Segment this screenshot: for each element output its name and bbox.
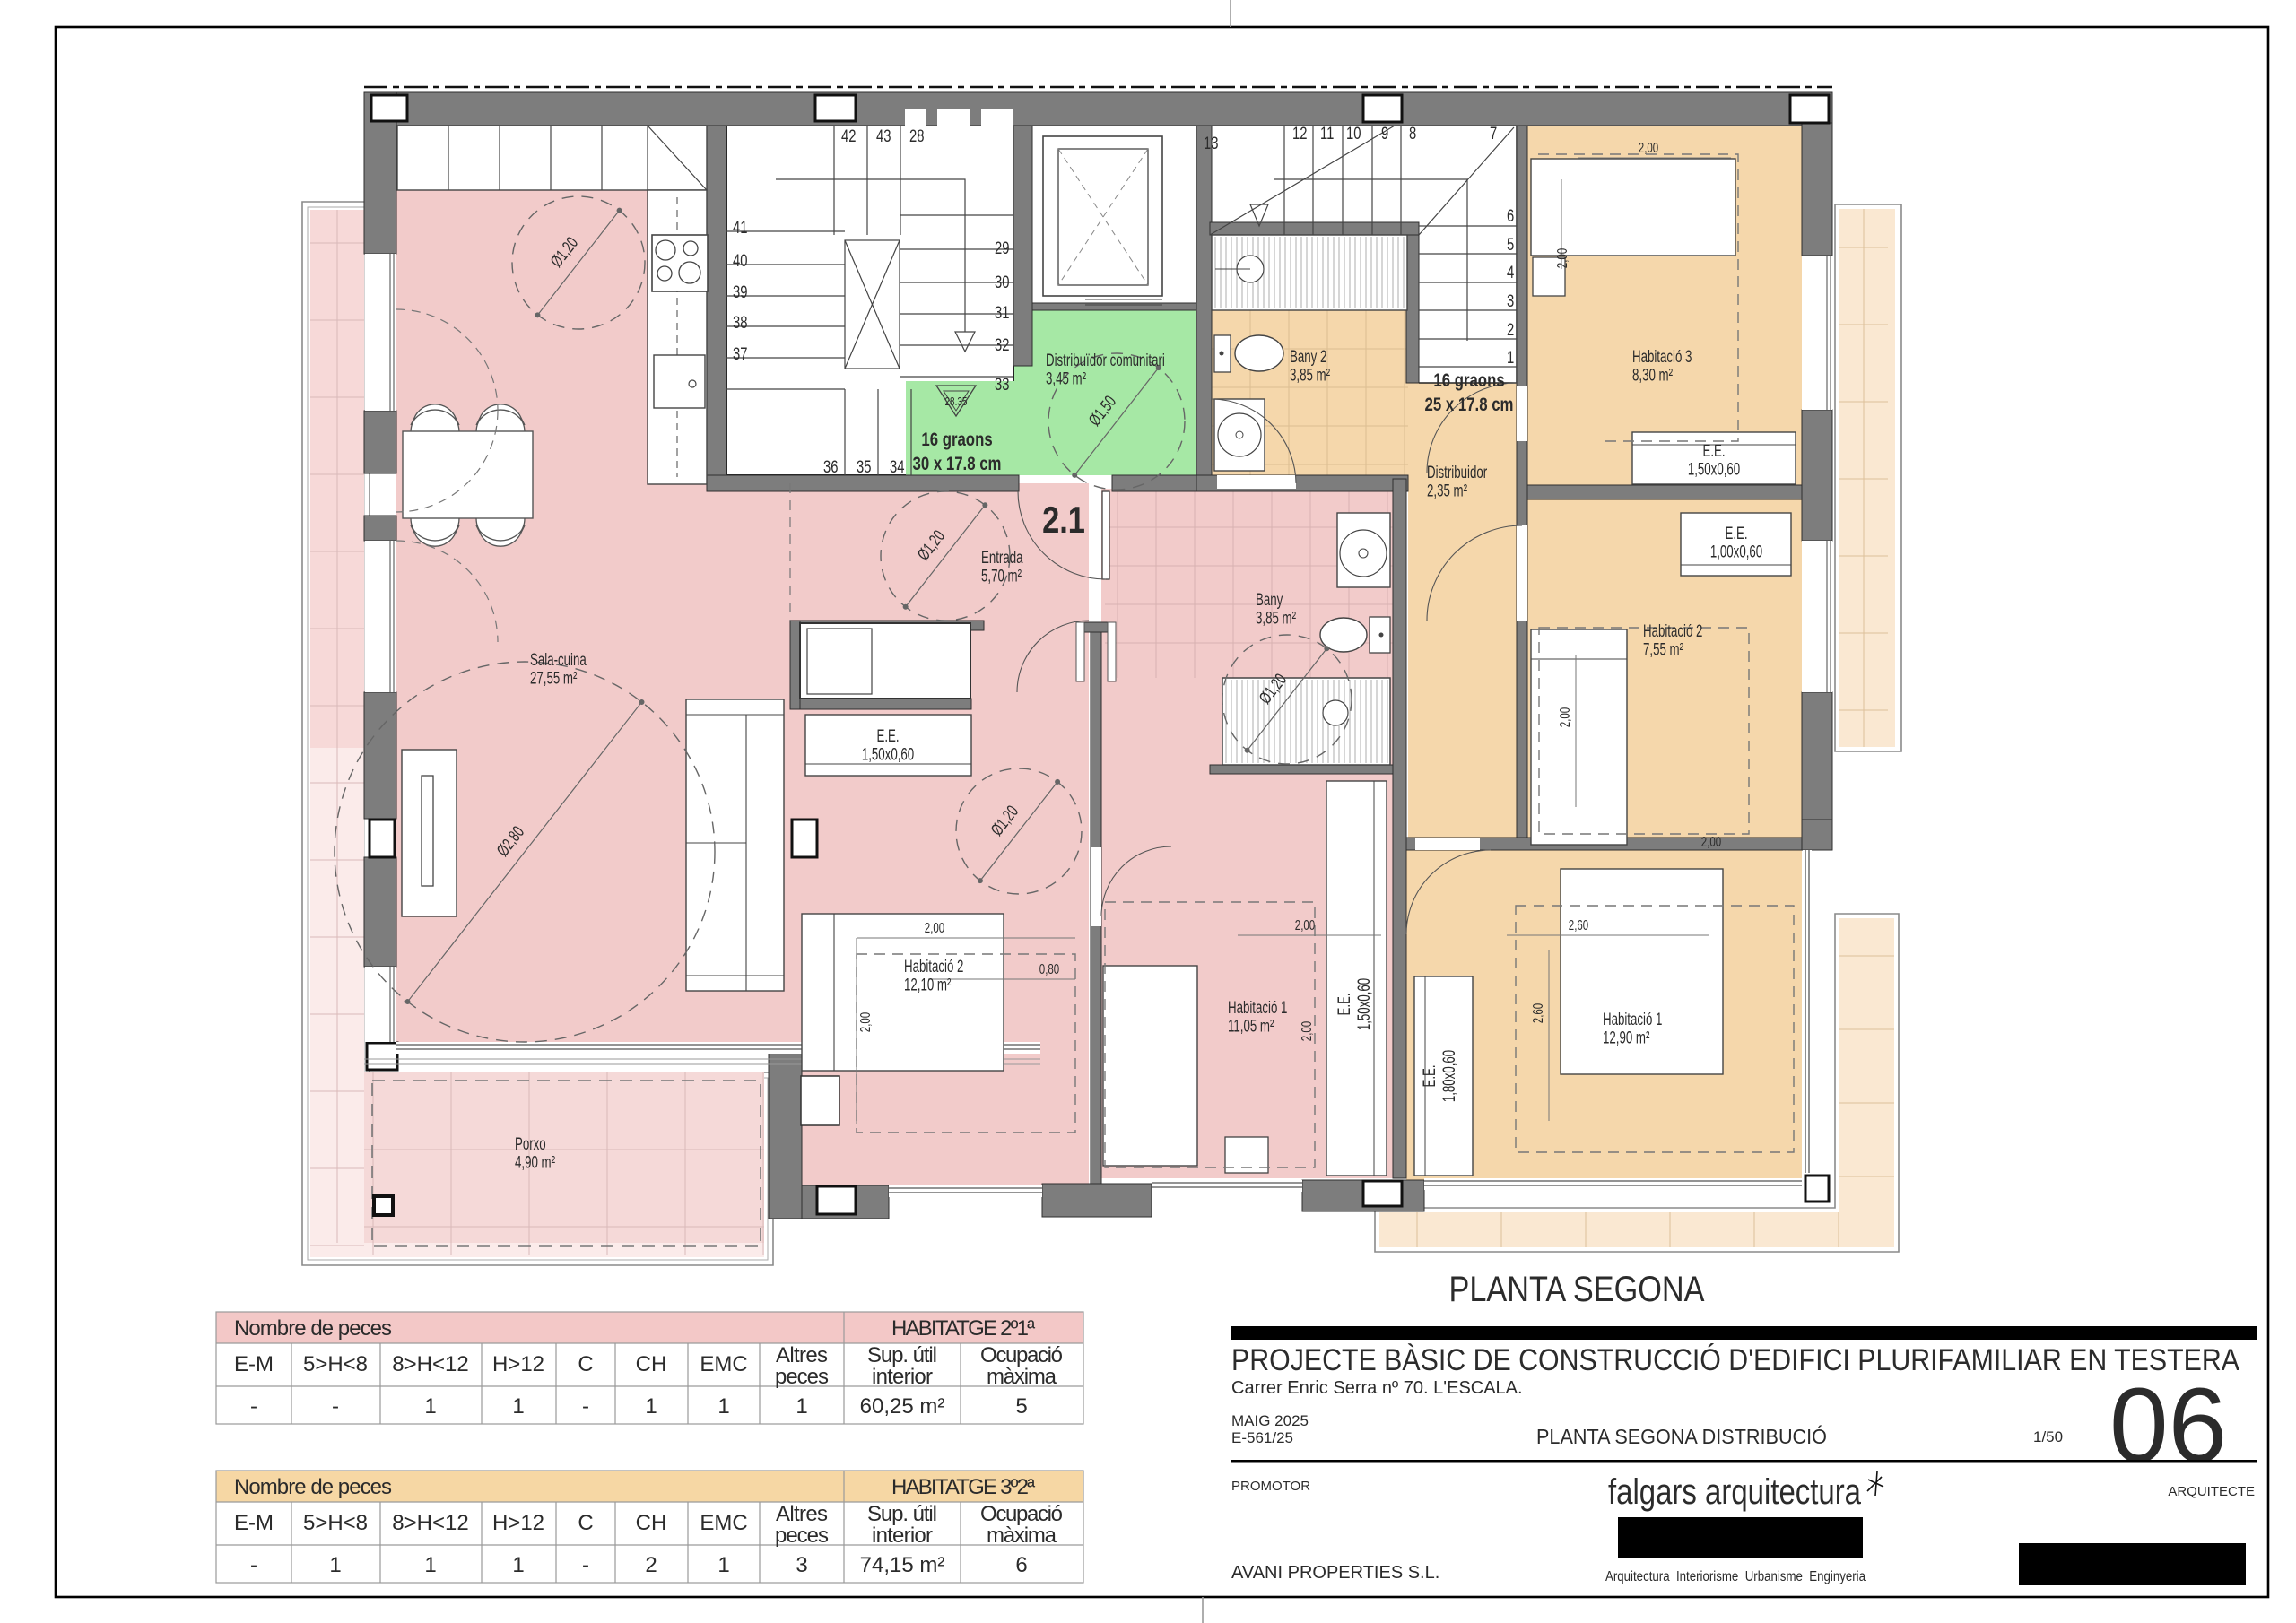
svg-text:E.E.: E.E. (1421, 1064, 1439, 1087)
svg-text:6: 6 (1507, 206, 1514, 225)
svg-text:10: 10 (1346, 124, 1361, 143)
svg-text:Sup. útil: Sup. útil (867, 1502, 937, 1526)
svg-text:2,35 m²: 2,35 m² (1427, 482, 1467, 500)
svg-text:16 graons: 16 graons (1433, 370, 1504, 391)
svg-text:Ocupació: Ocupació (980, 1502, 1063, 1526)
svg-text:Bany 2: Bany 2 (1290, 348, 1326, 367)
svg-text:PROMOTOR: PROMOTOR (1231, 1479, 1310, 1494)
svg-text:30: 30 (995, 273, 1009, 291)
svg-text:2: 2 (645, 1553, 657, 1577)
svg-text:1,50x0,60: 1,50x0,60 (1355, 978, 1374, 1030)
svg-text:màxima: màxima (987, 1523, 1057, 1548)
svg-text:6: 6 (1015, 1553, 1027, 1577)
svg-text:1/50: 1/50 (2033, 1428, 2063, 1445)
svg-text:peces: peces (775, 1365, 829, 1389)
svg-text:ARQUITECTE: ARQUITECTE (2168, 1484, 2255, 1499)
svg-text:29: 29 (995, 239, 1009, 257)
svg-text:37: 37 (733, 344, 747, 363)
svg-text:E-M: E-M (234, 1352, 274, 1376)
svg-text:Entrada: Entrada (981, 549, 1023, 568)
svg-text:8: 8 (1409, 124, 1416, 143)
svg-text:43: 43 (876, 126, 891, 145)
svg-text:0,80: 0,80 (1039, 960, 1060, 976)
svg-text:Habitació 2: Habitació 2 (1643, 622, 1702, 641)
svg-text:13: 13 (1204, 134, 1218, 152)
svg-text:PROJECTE BÀSIC DE CONSTRUCCIÓ: PROJECTE BÀSIC DE CONSTRUCCIÓ D'EDIFICI … (1231, 1343, 2239, 1377)
svg-text:Ocupació: Ocupació (980, 1343, 1063, 1367)
svg-text:1: 1 (717, 1553, 729, 1577)
svg-text:CH: CH (636, 1352, 667, 1376)
svg-text:30 x 17.8 cm: 30 x 17.8 cm (913, 454, 1002, 474)
svg-text:4,90 m²: 4,90 m² (515, 1153, 555, 1172)
svg-text:5>H<8: 5>H<8 (303, 1352, 368, 1376)
svg-text:Nombre de peces: Nombre de peces (234, 1475, 392, 1499)
svg-text:39: 39 (733, 282, 747, 301)
svg-text:2,00: 2,00 (857, 1012, 873, 1033)
svg-text:E.E.: E.E. (876, 727, 899, 746)
svg-text:Arquitectura Interiorisme Ur: Arquitectura Interiorisme Urbanisme Engi… (1605, 1569, 1865, 1584)
svg-text:2,00: 2,00 (1639, 139, 1659, 155)
svg-text:peces: peces (775, 1523, 829, 1548)
svg-text:2,00: 2,00 (1295, 916, 1316, 933)
svg-text:1: 1 (424, 1553, 436, 1577)
svg-text:Porxo: Porxo (515, 1135, 546, 1154)
svg-text:38: 38 (733, 313, 747, 332)
svg-text:Bany: Bany (1256, 591, 1283, 610)
svg-text:3,45 m²: 3,45 m² (1046, 369, 1086, 388)
svg-text:2: 2 (1507, 320, 1514, 339)
svg-text:7: 7 (1490, 124, 1497, 143)
svg-text:1: 1 (512, 1394, 524, 1419)
svg-text:1: 1 (512, 1553, 524, 1577)
svg-text:2,60: 2,60 (1529, 1003, 1545, 1024)
svg-text:Habitació 1: Habitació 1 (1228, 999, 1287, 1018)
svg-text:12,90 m²: 12,90 m² (1603, 1028, 1650, 1047)
svg-text:E-561/25: E-561/25 (1231, 1429, 1293, 1446)
svg-text:2,00: 2,00 (1556, 707, 1572, 728)
svg-text:12: 12 (1292, 124, 1307, 143)
svg-text:Altres: Altres (776, 1502, 828, 1526)
svg-text:Habitació 3: Habitació 3 (1632, 348, 1692, 367)
svg-text:2.1: 2.1 (1042, 499, 1085, 542)
svg-text:Altres: Altres (776, 1343, 828, 1367)
svg-text:Carrer Enric Serra nº 70. L'ES: Carrer Enric Serra nº 70. L'ESCALA. (1231, 1378, 1523, 1398)
svg-text:36: 36 (823, 457, 838, 476)
svg-text:5,70 m²: 5,70 m² (981, 567, 1022, 586)
svg-text:3: 3 (796, 1553, 807, 1577)
svg-text:Sala-cuina: Sala-cuina (530, 651, 587, 670)
svg-text:-: - (582, 1394, 589, 1419)
svg-text:06: 06 (2109, 1367, 2227, 1485)
svg-text:74,15 m²: 74,15 m² (860, 1553, 945, 1577)
svg-text:-: - (250, 1394, 257, 1419)
svg-text:33: 33 (995, 375, 1009, 394)
svg-text:-: - (250, 1553, 257, 1577)
svg-text:C: C (578, 1511, 593, 1535)
svg-text:1,80x0,60: 1,80x0,60 (1440, 1050, 1459, 1102)
svg-text:28: 28 (909, 126, 924, 145)
svg-text:1: 1 (796, 1394, 807, 1419)
svg-text:2,00: 2,00 (1298, 1021, 1314, 1042)
svg-text:Distribuïdor comunitari: Distribuïdor comunitari (1046, 352, 1165, 370)
svg-text:3: 3 (1507, 291, 1514, 310)
svg-text:3,85 m²: 3,85 m² (1256, 609, 1296, 628)
svg-text:Habitació 2: Habitació 2 (904, 958, 963, 976)
svg-text:31: 31 (995, 303, 1009, 322)
svg-text:Habitació 1: Habitació 1 (1603, 1011, 1662, 1029)
svg-text:EMC: EMC (700, 1511, 747, 1535)
svg-text:HABITATGE 2º1ª: HABITATGE 2º1ª (891, 1316, 1035, 1341)
svg-text:1,00x0,60: 1,00x0,60 (1710, 542, 1762, 561)
svg-text:16 graons: 16 graons (921, 430, 992, 450)
svg-text:12,10 m²: 12,10 m² (904, 976, 952, 994)
svg-text:EMC: EMC (700, 1352, 747, 1376)
svg-text:1,50x0,60: 1,50x0,60 (1688, 460, 1740, 479)
svg-text:H>12: H>12 (492, 1352, 544, 1376)
svg-text:Sup. útil: Sup. útil (867, 1343, 937, 1367)
svg-text:-: - (332, 1394, 339, 1419)
svg-text:2,00: 2,00 (1553, 248, 1570, 269)
svg-text:60,25 m²: 60,25 m² (860, 1394, 945, 1419)
svg-text:42: 42 (841, 126, 856, 145)
svg-text:27,55 m²: 27,55 m² (530, 669, 578, 688)
svg-text:màxima: màxima (987, 1365, 1057, 1389)
svg-text:28.35: 28.35 (945, 396, 968, 408)
svg-text:PLANTA SEGONA DISTRIBUCIÓ: PLANTA SEGONA DISTRIBUCIÓ (1536, 1425, 1827, 1448)
svg-text:-: - (582, 1553, 589, 1577)
svg-text:HABITATGE 3º2ª: HABITATGE 3º2ª (891, 1475, 1035, 1499)
svg-text:4: 4 (1507, 263, 1514, 282)
svg-text:E.E.: E.E. (1335, 993, 1354, 1015)
svg-text:1: 1 (717, 1394, 729, 1419)
svg-text:40: 40 (733, 251, 747, 270)
svg-text:5: 5 (1507, 235, 1514, 254)
svg-text:Distribuidor: Distribuidor (1427, 464, 1488, 482)
svg-text:1,50x0,60: 1,50x0,60 (862, 745, 914, 764)
svg-text:8>H<12: 8>H<12 (392, 1352, 468, 1376)
svg-text:1: 1 (424, 1394, 436, 1419)
svg-text:PLANTA SEGONA: PLANTA SEGONA (1449, 1270, 1705, 1309)
svg-text:1: 1 (645, 1394, 657, 1419)
svg-text:3,85 m²: 3,85 m² (1290, 366, 1330, 385)
svg-text:41: 41 (733, 218, 747, 237)
svg-text:32: 32 (995, 335, 1009, 354)
svg-text:AVANI PROPERTIES S.L.: AVANI PROPERTIES S.L. (1231, 1563, 1439, 1583)
svg-text:5: 5 (1015, 1394, 1027, 1419)
svg-text:1: 1 (1507, 348, 1514, 367)
svg-text:11: 11 (1320, 124, 1334, 143)
svg-text:25 x 17.8 cm: 25 x 17.8 cm (1425, 395, 1514, 415)
svg-text:E.E.: E.E. (1702, 442, 1725, 461)
svg-text:2,00: 2,00 (1701, 833, 1722, 849)
svg-text:34: 34 (890, 457, 904, 476)
svg-text:1: 1 (329, 1553, 341, 1577)
svg-text:MAIG 2025: MAIG 2025 (1231, 1412, 1309, 1429)
svg-text:8>H<12: 8>H<12 (392, 1511, 468, 1535)
svg-text:interior: interior (872, 1365, 933, 1389)
svg-text:9: 9 (1381, 124, 1388, 143)
svg-text:8,30 m²: 8,30 m² (1632, 366, 1673, 385)
svg-text:2,60: 2,60 (1569, 916, 1589, 933)
svg-text:interior: interior (872, 1523, 933, 1548)
svg-text:H>12: H>12 (492, 1511, 544, 1535)
svg-text:7,55 m²: 7,55 m² (1643, 640, 1683, 659)
svg-text:E-M: E-M (234, 1511, 274, 1535)
svg-text:falgars arquitectura: falgars arquitectura (1608, 1472, 1862, 1512)
svg-text:Nombre de peces: Nombre de peces (234, 1316, 392, 1341)
svg-text:2,00: 2,00 (925, 919, 945, 935)
svg-text:35: 35 (857, 457, 871, 476)
svg-text:C: C (578, 1352, 593, 1376)
svg-text:5>H<8: 5>H<8 (303, 1511, 368, 1535)
svg-text:11,05 m²: 11,05 m² (1228, 1017, 1274, 1036)
svg-text:E.E.: E.E. (1725, 525, 1747, 543)
svg-text:CH: CH (636, 1511, 667, 1535)
